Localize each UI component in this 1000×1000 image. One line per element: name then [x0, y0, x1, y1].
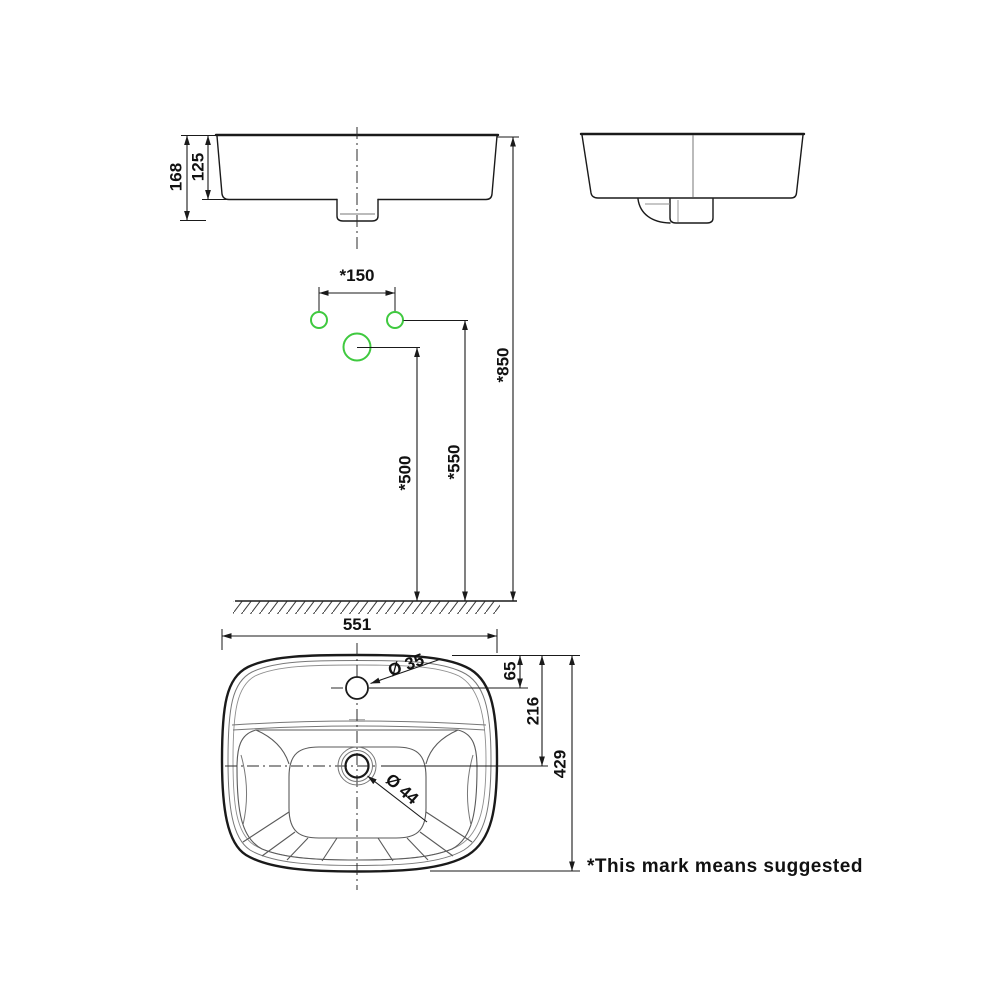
floor-hatch: [233, 602, 500, 615]
side-trap-curve: [638, 199, 670, 223]
drawing-sheet: 168 125 *150 *850 *550 *500: [0, 0, 1000, 1000]
dim-supply-height: *550: [445, 445, 464, 480]
dim-front-overall-height: 168: [167, 163, 186, 191]
dim-front-bowl-height: 125: [189, 153, 208, 181]
footnote-text: *This mark means suggested: [587, 856, 863, 877]
dim-overall-width: 551: [343, 615, 371, 634]
dim-drain-height: *500: [396, 456, 415, 491]
dim-drain-offset: 216: [524, 697, 543, 725]
front-left-wall: [217, 136, 337, 200]
dim-faucet-offset: 65: [501, 662, 520, 681]
dim-rim-height: *850: [494, 348, 513, 383]
bowl-ear-right: [426, 730, 458, 764]
side-trap-box: [670, 199, 713, 223]
plan-view: Ø 35 Ø 44 551 65 216 429: [222, 615, 580, 890]
front-view: 168 125: [167, 127, 499, 249]
installation-diagram: *150 *850 *550 *500: [233, 137, 519, 614]
bowl-ear-left: [256, 730, 289, 764]
technical-drawing-canvas: 168 125 *150 *850 *550 *500: [0, 0, 1000, 1000]
front-right-wall: [378, 136, 497, 200]
dim-overall-depth: 429: [551, 750, 570, 778]
side-view: [581, 134, 804, 223]
dim-faucet-spacing: *150: [340, 266, 375, 285]
supply-hole-left-circle: [311, 312, 327, 328]
deck-line-2: [233, 726, 485, 730]
bowl-outline: [237, 730, 477, 860]
supply-hole-right-circle: [387, 312, 403, 328]
faucet-hole-circle: [346, 677, 368, 699]
